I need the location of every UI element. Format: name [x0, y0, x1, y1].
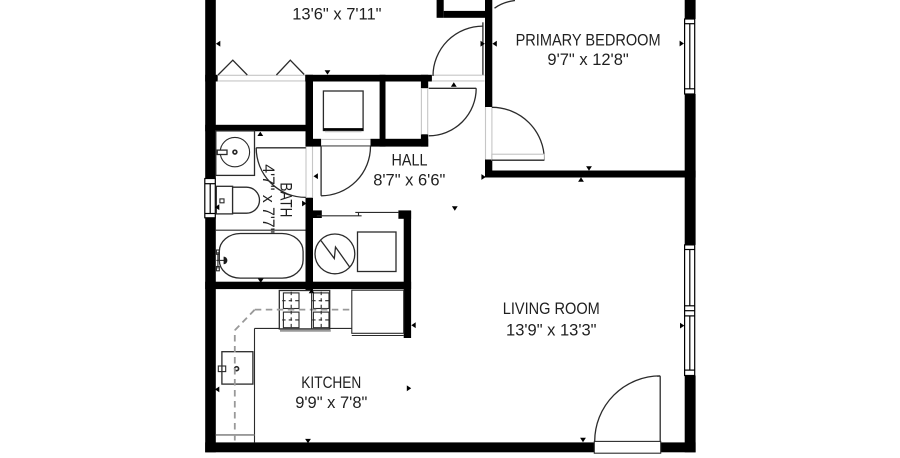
- svg-text:PRIMARY BEDROOM: PRIMARY BEDROOM: [516, 31, 661, 49]
- svg-text:13'9" x 13'3": 13'9" x 13'3": [506, 321, 597, 339]
- svg-text:8'7" x 6'6": 8'7" x 6'6": [373, 172, 445, 190]
- svg-text:13'6" x 7'11": 13'6" x 7'11": [292, 6, 381, 24]
- svg-text:4'7" x 7'7": 4'7" x 7'7": [259, 164, 277, 233]
- svg-text:HALL: HALL: [392, 152, 428, 170]
- svg-text:KITCHEN: KITCHEN: [301, 374, 361, 392]
- svg-text:LIVING ROOM: LIVING ROOM: [503, 300, 600, 318]
- svg-text:9'9" x 7'8": 9'9" x 7'8": [295, 394, 367, 412]
- svg-text:9'7" x 12'8": 9'7" x 12'8": [547, 51, 628, 69]
- svg-text:BATH: BATH: [277, 182, 295, 217]
